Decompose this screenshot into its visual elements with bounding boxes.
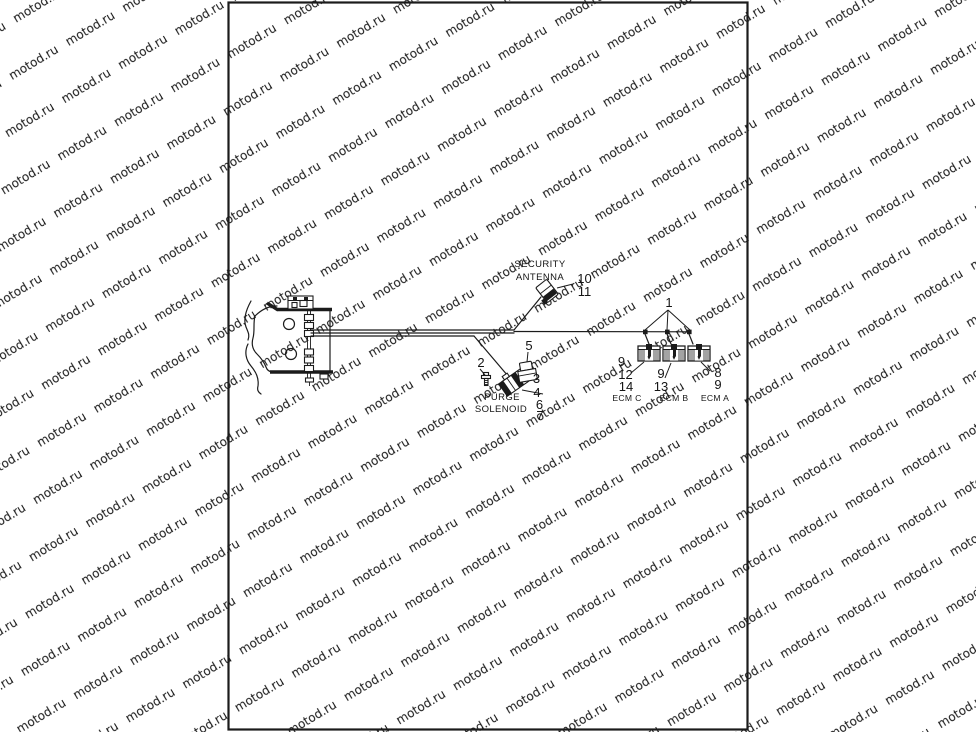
clip-icon xyxy=(305,315,314,321)
callout-1: 1 xyxy=(665,295,672,310)
ecm-b-connector-icon xyxy=(663,344,685,361)
junction-dot xyxy=(665,330,670,335)
ecm-a-label: ECM A xyxy=(701,393,729,403)
security-antenna-label-line2: ANTENNA xyxy=(516,272,564,283)
callout-14: 14 xyxy=(619,379,633,394)
ecm-connector-icons xyxy=(638,344,710,361)
parts-diagram-canvas: motod.ru motod.ru motod.ru xyxy=(0,0,976,732)
callout-3: 3 xyxy=(533,371,540,386)
clip-icon xyxy=(305,349,314,355)
watermark-layer xyxy=(0,0,976,732)
callout-13: 13 xyxy=(654,379,668,394)
junction-dot xyxy=(687,330,692,335)
callout-9-ecm-a: 9 xyxy=(714,377,721,392)
clip-icon xyxy=(305,366,314,372)
callout-2: 2 xyxy=(477,355,484,370)
top-connector-icon xyxy=(288,296,313,309)
ecm-c-label: ECM C xyxy=(612,393,641,403)
security-antenna-label-line1: SECURITY xyxy=(514,259,565,270)
purge-solenoid-label-line1: PURGE xyxy=(484,392,520,403)
callout-7: 7 xyxy=(536,408,543,423)
clip-icon xyxy=(305,323,314,329)
callout-11: 11 xyxy=(578,284,592,299)
ecm-c-connector-icon xyxy=(638,344,660,361)
bottom-clip-icon xyxy=(320,374,328,379)
callout-5: 5 xyxy=(525,338,532,353)
ecm-b-label: ECM B xyxy=(660,393,689,403)
clip-icon xyxy=(305,357,314,363)
purge-solenoid-label-line2: SOLENOID xyxy=(475,404,527,415)
ecm-a-connector-icon xyxy=(688,344,710,361)
